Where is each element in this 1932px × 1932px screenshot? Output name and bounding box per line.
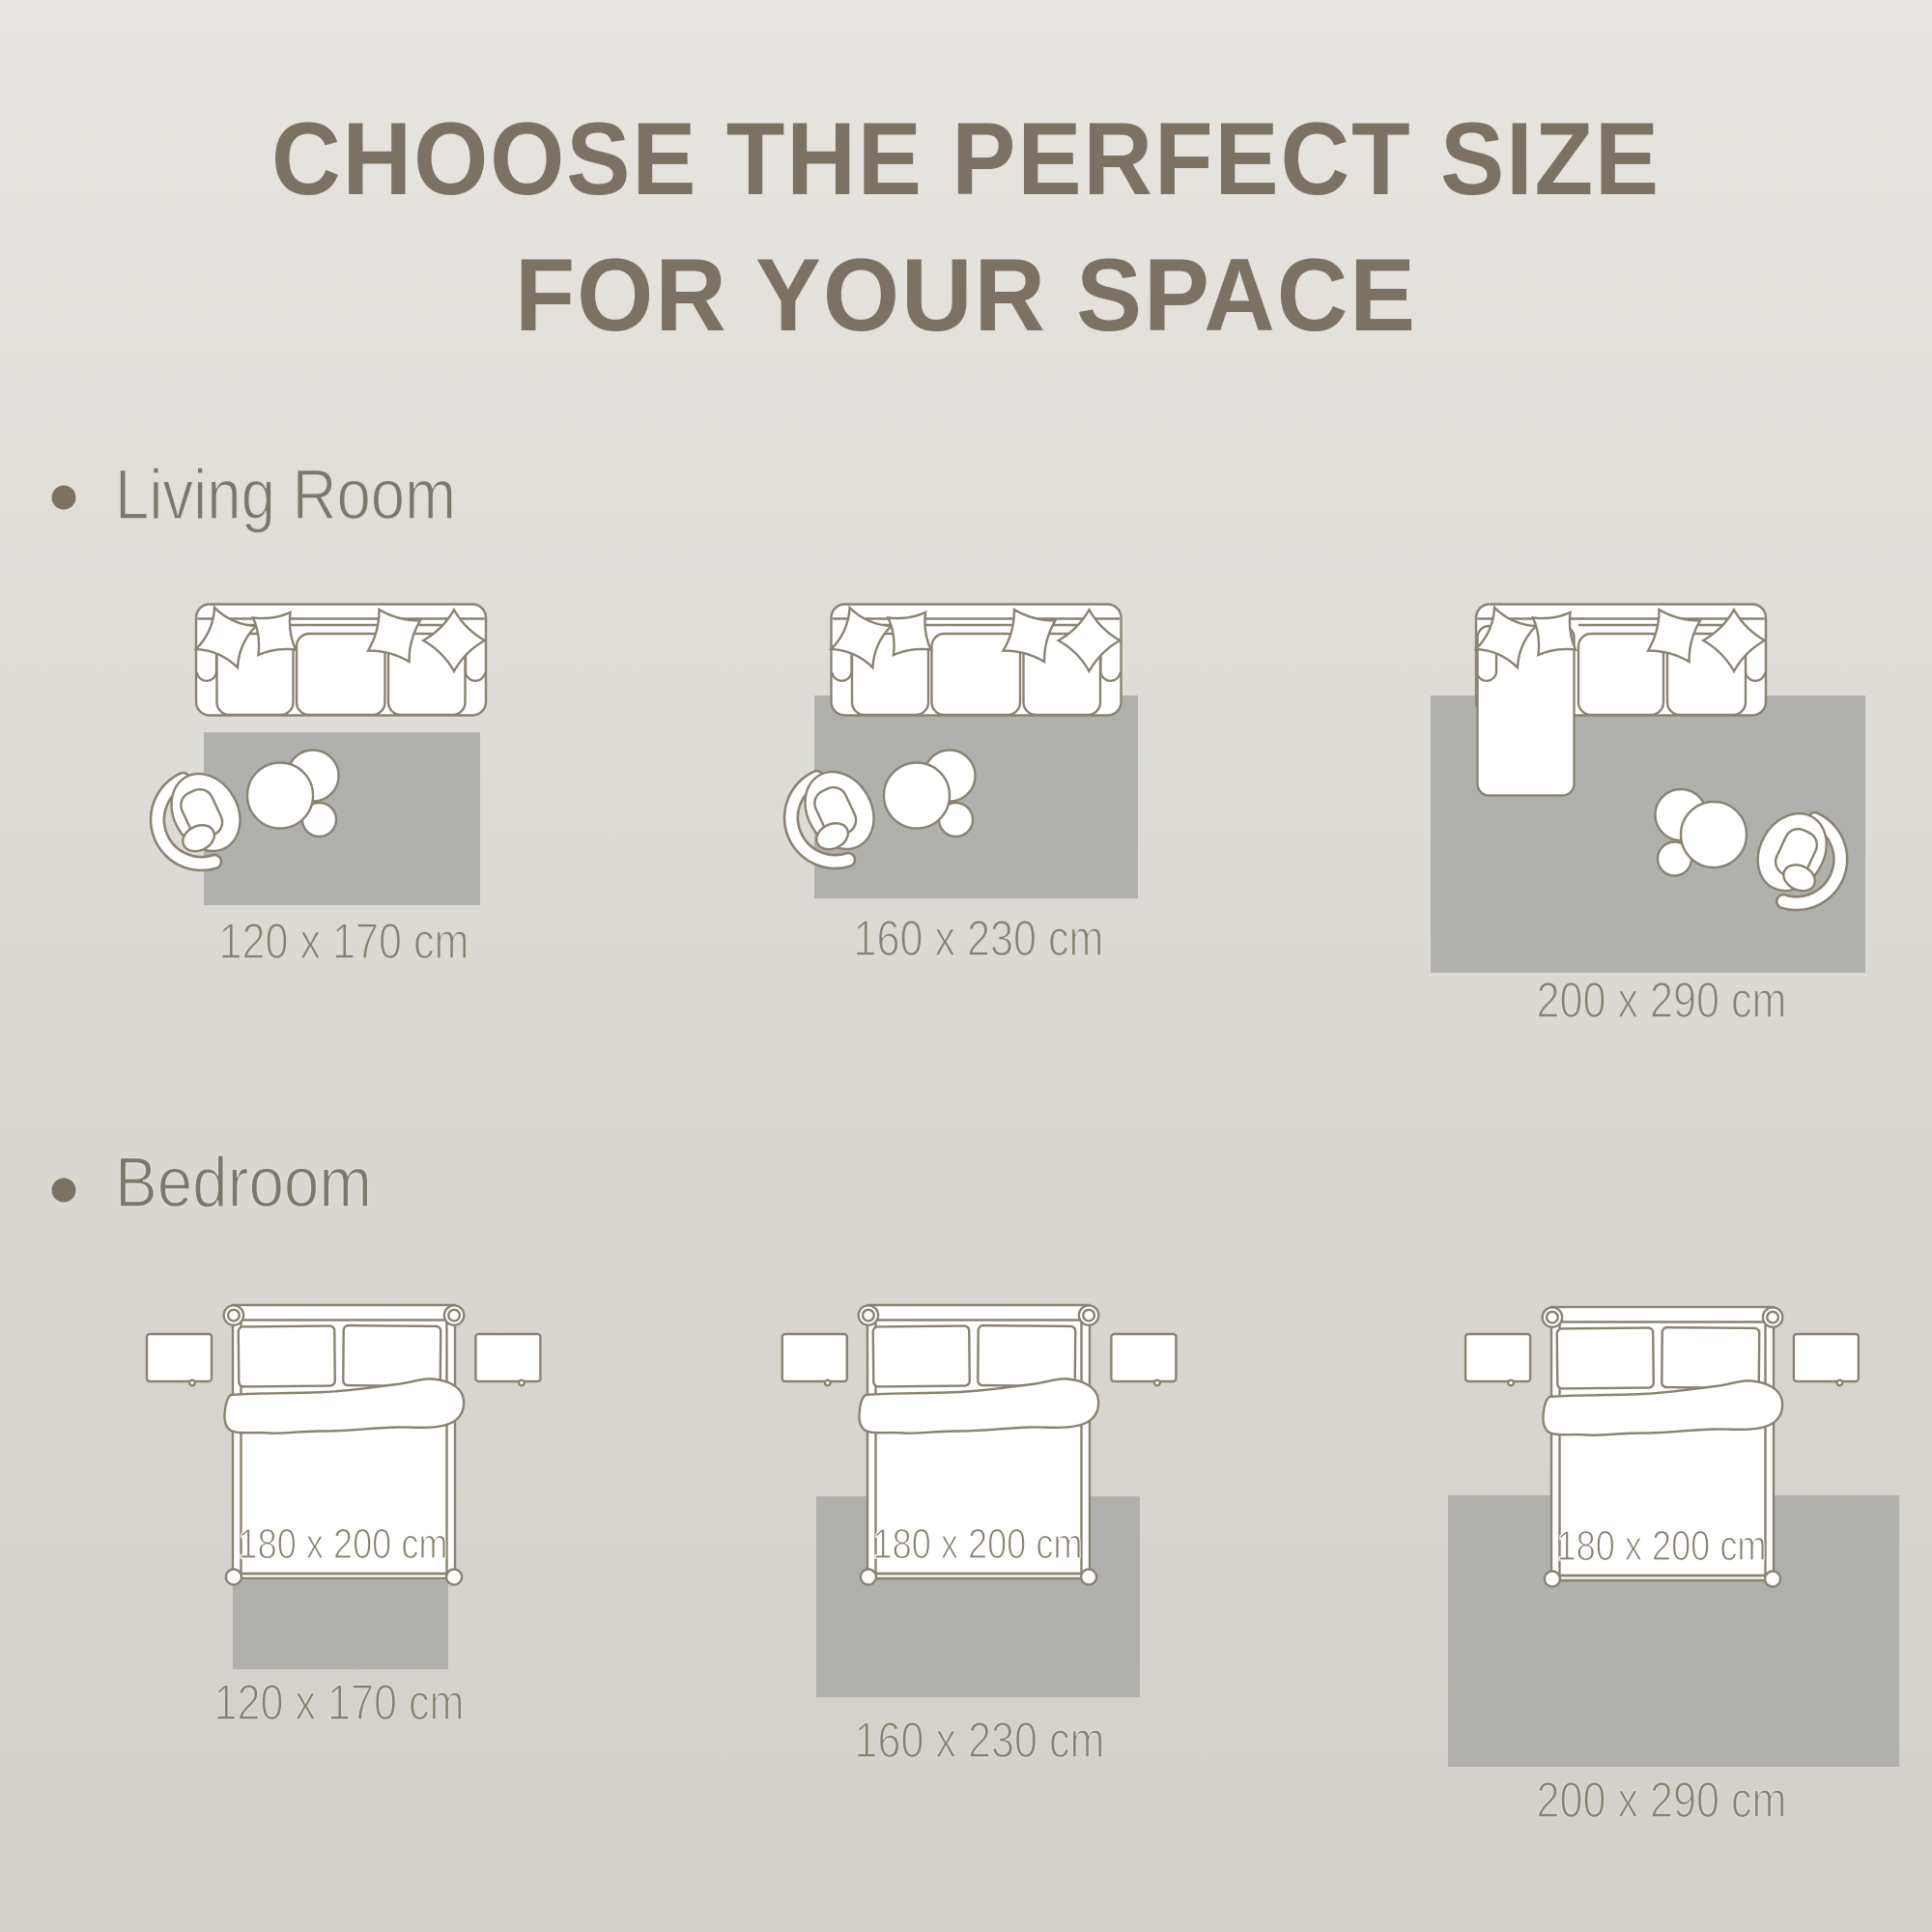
svg-text:120 x 170 cm: 120 x 170 cm (214, 1675, 465, 1731)
svg-text:FOR YOUR SPACE: FOR YOUR SPACE (515, 237, 1417, 353)
svg-text:120 x 170 cm: 120 x 170 cm (219, 914, 469, 970)
svg-text:160 x 230 cm: 160 x 230 cm (854, 911, 1104, 967)
svg-text:Bedroom: Bedroom (115, 1144, 372, 1222)
svg-text:200 x 290 cm: 200 x 290 cm (1537, 973, 1787, 1029)
svg-text:160 x 230 cm: 160 x 230 cm (855, 1713, 1105, 1769)
svg-text:Living Room: Living Room (115, 456, 456, 534)
svg-text:200 x 290 cm: 200 x 290 cm (1537, 1773, 1787, 1829)
svg-text:180 x 200 cm: 180 x 200 cm (1557, 1522, 1767, 1570)
svg-text:CHOOSE THE PERFECT SIZE: CHOOSE THE PERFECT SIZE (271, 100, 1661, 216)
svg-text:180 x 200 cm: 180 x 200 cm (873, 1520, 1083, 1568)
svg-text:180 x 200 cm: 180 x 200 cm (239, 1520, 448, 1568)
